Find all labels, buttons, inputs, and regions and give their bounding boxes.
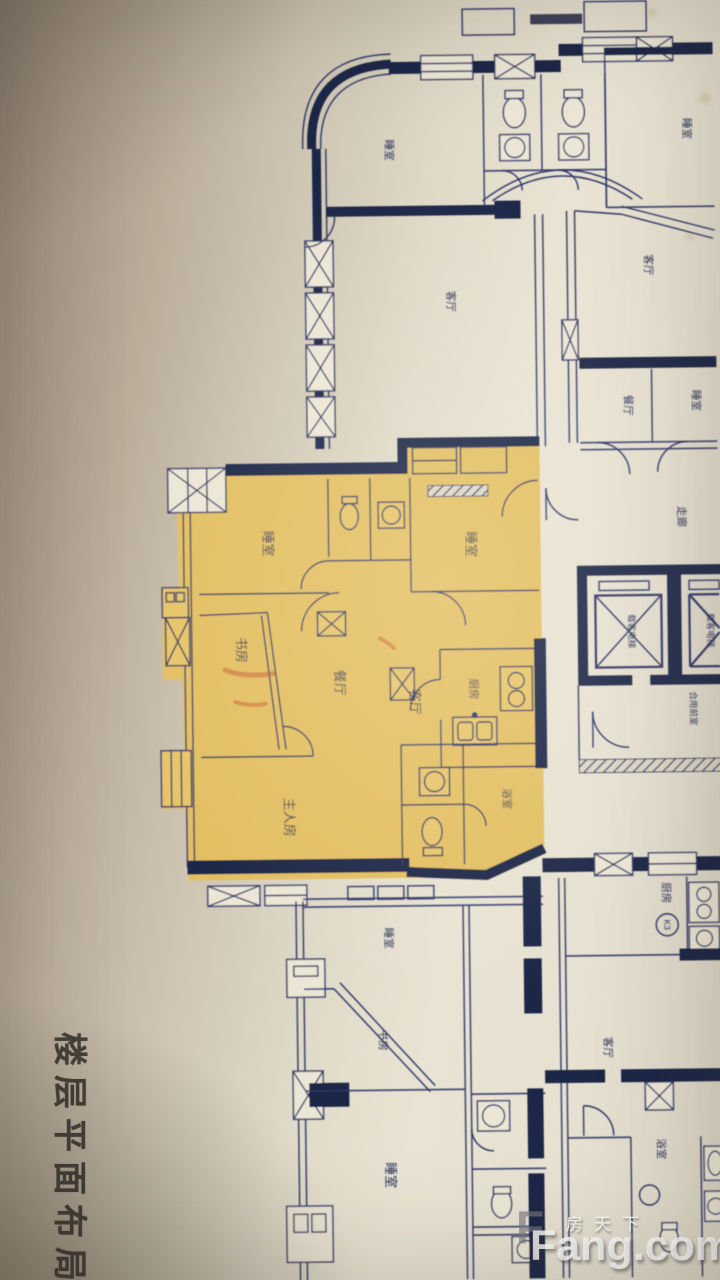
floor-plan-svg: 睡室 睡室 客厅 客厅 餐厅 睡室 走廊 载客电梯 载客电梯 合用前室 睡室 睡… bbox=[0, 0, 720, 1280]
room-label-unit-living: 客厅 bbox=[407, 689, 422, 715]
plan-content: 睡室 睡室 客厅 客厅 餐厅 睡室 走廊 载客电梯 载客电梯 合用前室 睡室 睡… bbox=[152, 0, 720, 1280]
room-label-top-bedroom1: 睡室 bbox=[383, 140, 396, 161]
room-label-bottom-bedroom1: 睡室 bbox=[382, 928, 395, 949]
room-label-bottom-study: 书房 bbox=[377, 1030, 390, 1051]
elevator-core bbox=[577, 564, 720, 773]
room-label-unit-dining: 餐厅 bbox=[332, 670, 347, 696]
top-unit bbox=[301, 0, 717, 449]
toilet-icon bbox=[660, 1223, 678, 1252]
stove-icon bbox=[500, 666, 533, 710]
room-label-elevator2: 载客电梯 bbox=[705, 613, 715, 648]
room-label-top-living: 客厅 bbox=[444, 291, 457, 312]
room-label-right-dining: 餐厅 bbox=[622, 395, 635, 416]
bath-fixture-icon bbox=[704, 1146, 720, 1180]
bath-fixture-icon bbox=[705, 1191, 720, 1221]
right-unit bbox=[542, 205, 718, 520]
basin-icon bbox=[378, 502, 404, 528]
toilet-icon bbox=[503, 90, 525, 127]
room-label-right-bedroom: 睡室 bbox=[690, 390, 703, 411]
room-label-lobby: 合用前室 bbox=[688, 691, 698, 726]
room-label-unit-bedroom1: 睡室 bbox=[260, 531, 275, 557]
room-label-br-living: 客厅 bbox=[602, 1037, 615, 1058]
room-label-br-kitchen: 厨房 bbox=[660, 882, 673, 903]
sink-icon bbox=[689, 926, 719, 950]
room-label-top-bedroom2: 睡室 bbox=[680, 118, 693, 139]
room-label-unit-bedroom2: 睡室 bbox=[463, 531, 478, 557]
stove-icon bbox=[689, 882, 719, 922]
photo-of-floorplan: 睡室 睡室 客厅 客厅 餐厅 睡室 走廊 载客电梯 载客电梯 合用前室 睡室 睡… bbox=[0, 0, 720, 1280]
room-label-right-living: 客厅 bbox=[642, 254, 655, 275]
kitchen-code-badge: K3 bbox=[656, 914, 678, 936]
sink-icon bbox=[453, 712, 497, 746]
basin-icon bbox=[419, 767, 449, 795]
vertical-page-title: 楼层平面布局图 bbox=[48, 1032, 97, 1280]
bottom-unit bbox=[283, 884, 548, 1280]
basin-icon bbox=[559, 134, 589, 160]
room-label-right-hall: 走廊 bbox=[675, 506, 688, 527]
basin-icon bbox=[477, 1101, 509, 1131]
room-label-unit-bath: 浴室 bbox=[501, 788, 514, 809]
kitchen-code-label: K3 bbox=[662, 919, 672, 930]
room-label-elevator1: 载客电梯 bbox=[626, 614, 636, 649]
room-label-unit-master: 主人房 bbox=[282, 798, 297, 837]
room-label-unit-kitchen: 厨房 bbox=[467, 679, 480, 700]
toilet-icon bbox=[340, 497, 358, 530]
basin-icon bbox=[500, 134, 530, 160]
toilet-icon bbox=[491, 1187, 511, 1218]
room-label-bottom-bedroom2: 睡室 bbox=[383, 1162, 398, 1188]
room-label-br-bath: 浴室 bbox=[655, 1138, 668, 1159]
toilet-icon bbox=[422, 817, 442, 855]
room-label-unit-study: 书房 bbox=[234, 637, 249, 663]
basin-icon bbox=[639, 1185, 659, 1205]
toilet-icon bbox=[562, 90, 584, 127]
